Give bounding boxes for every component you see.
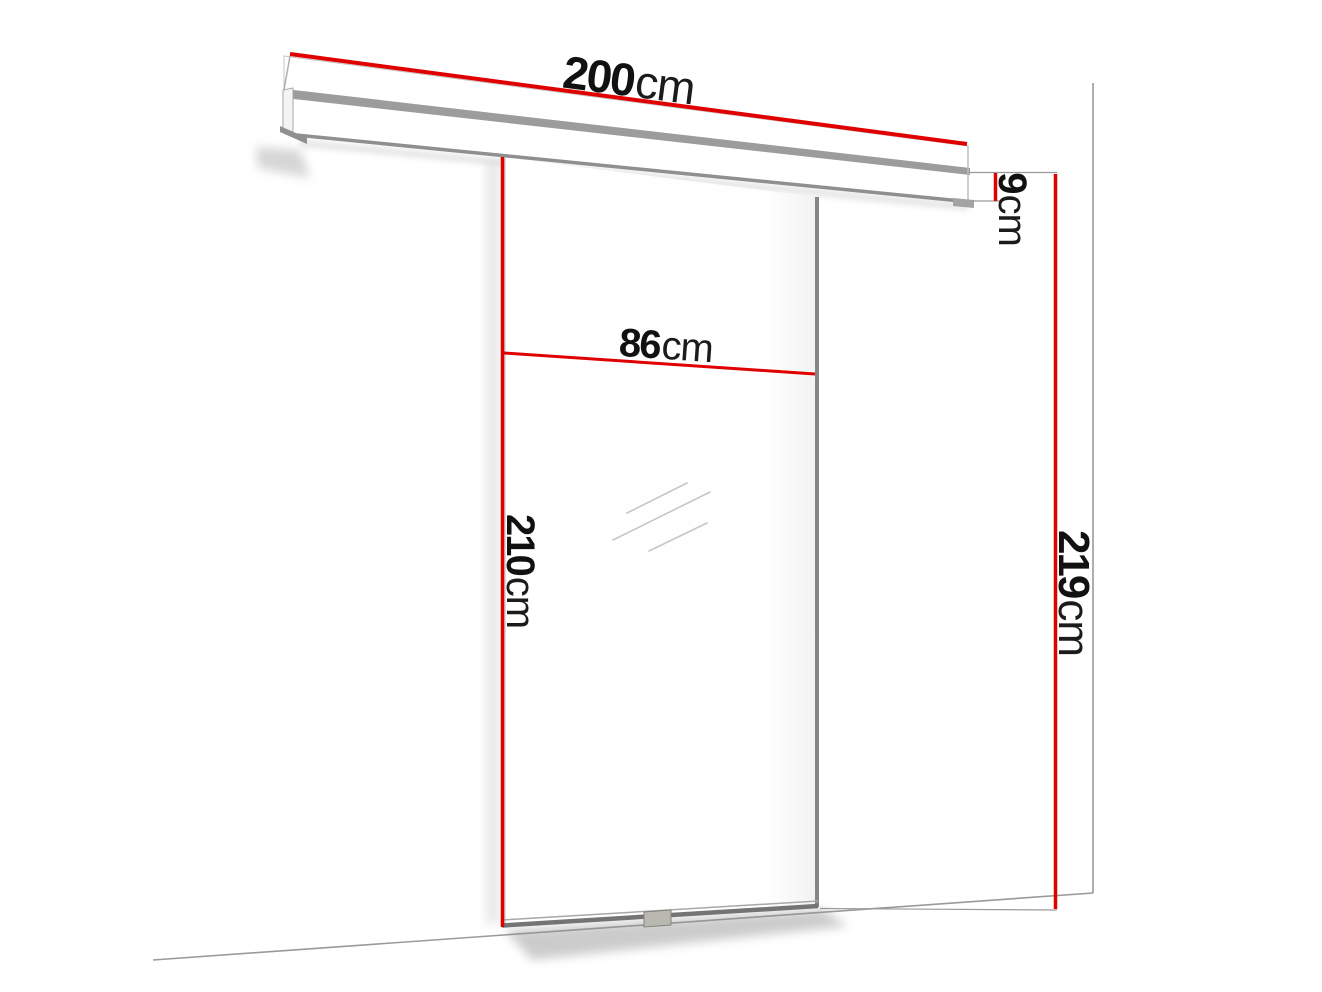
floor-guide-block (644, 910, 671, 927)
dimension-label-rail-height: 9cm (992, 172, 1032, 246)
diagram-line-art (0, 0, 1322, 992)
rail-height-unit: cm (990, 194, 1034, 245)
door-height-value: 210 (498, 514, 542, 575)
door-panel (502, 157, 818, 927)
door-width-unit: cm (660, 324, 714, 371)
sliding-door-dimension-diagram: 200cm 86cm 210cm 9cm 219cm (0, 0, 1322, 992)
total-height-unit: cm (1049, 599, 1098, 656)
rail-width-unit: cm (632, 55, 698, 114)
rail-width-value: 200 (560, 46, 637, 107)
rail-height-value: 9 (990, 172, 1034, 192)
dimension-label-door-width: 86cm (618, 323, 714, 369)
dimension-label-door-height: 210cm (500, 514, 540, 628)
door-glass-face (502, 157, 816, 927)
total-height-value: 219 (1049, 530, 1098, 597)
rail-end-shadow (256, 147, 310, 178)
door-height-unit: cm (498, 577, 542, 628)
rail-left-end-cap (283, 88, 293, 132)
dimension-extension-lines (820, 173, 1057, 911)
door-width-value: 86 (618, 321, 661, 368)
dimension-label-total-height: 219cm (1051, 530, 1095, 656)
